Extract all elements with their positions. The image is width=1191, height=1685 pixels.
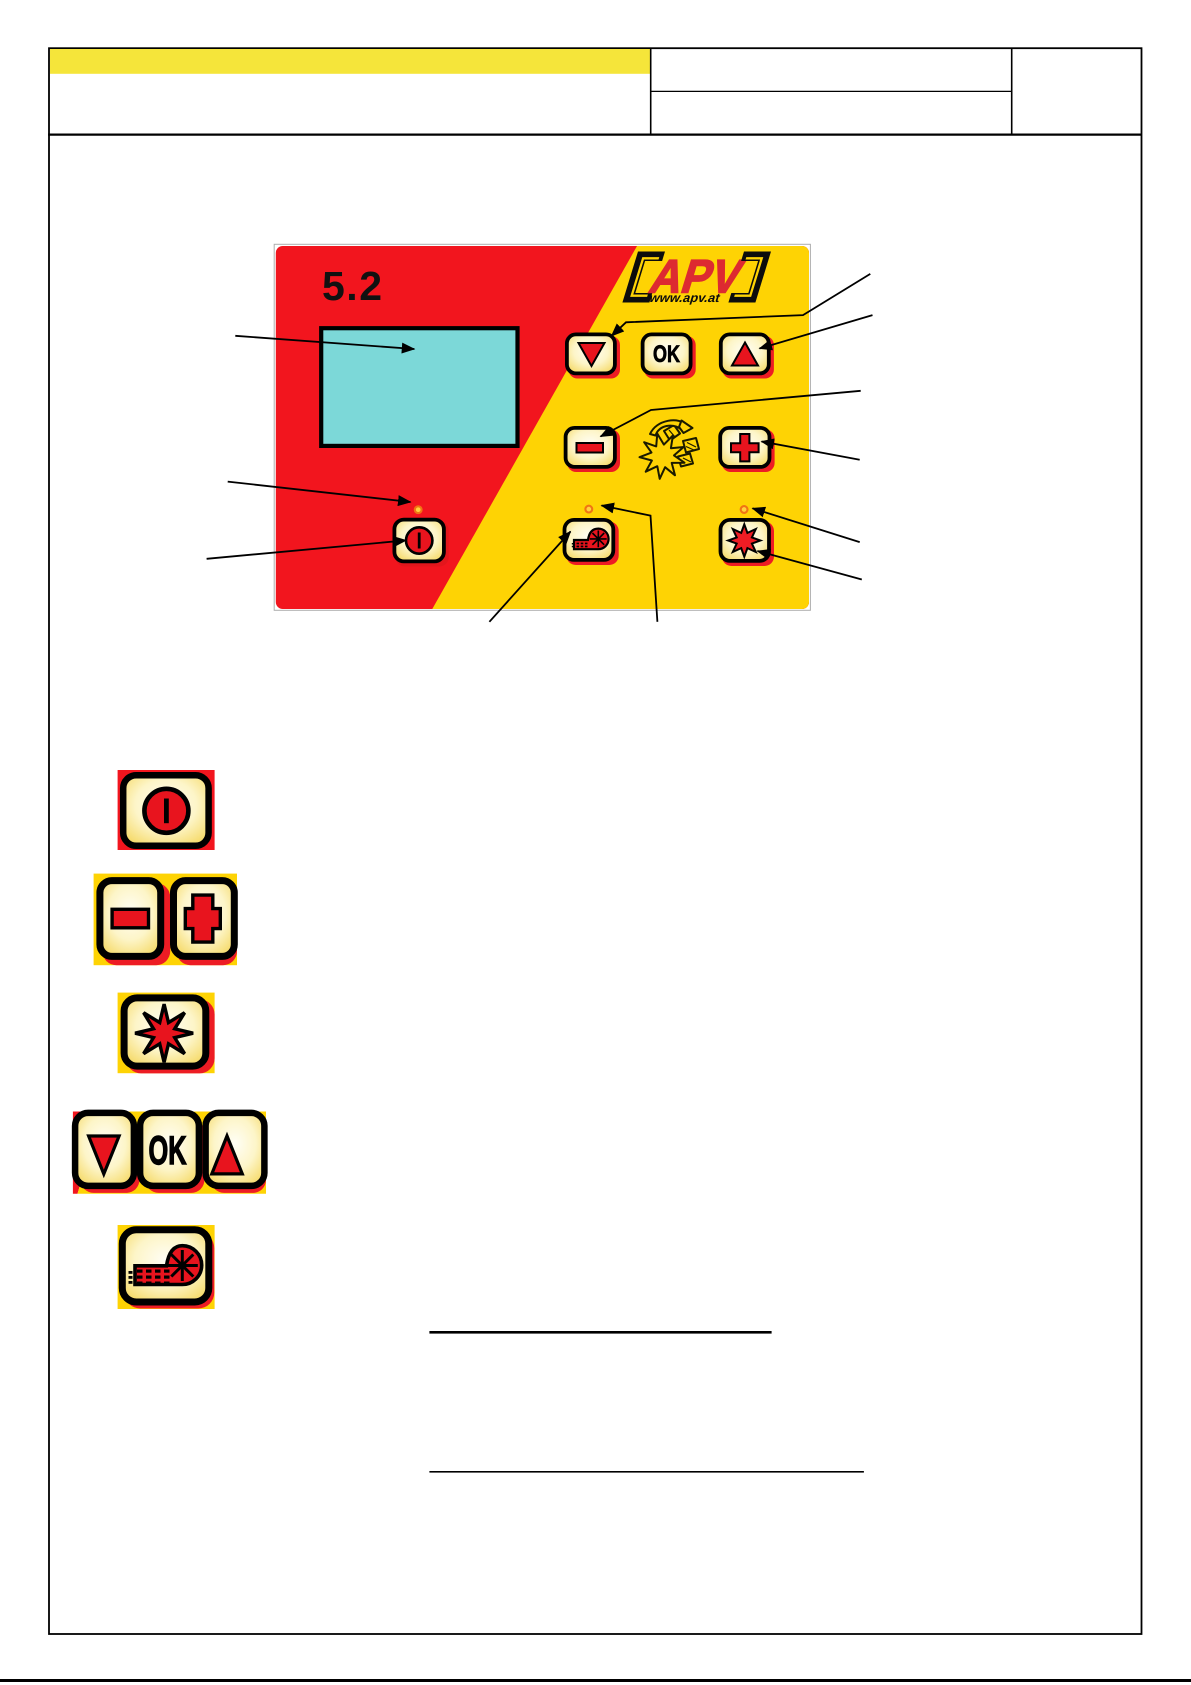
svg-text:www.apv.at: www.apv.at xyxy=(647,290,723,305)
svg-text:OK: OK xyxy=(149,1129,187,1173)
svg-text:OK: OK xyxy=(653,341,681,368)
svg-text:5.2: 5.2 xyxy=(322,263,384,309)
